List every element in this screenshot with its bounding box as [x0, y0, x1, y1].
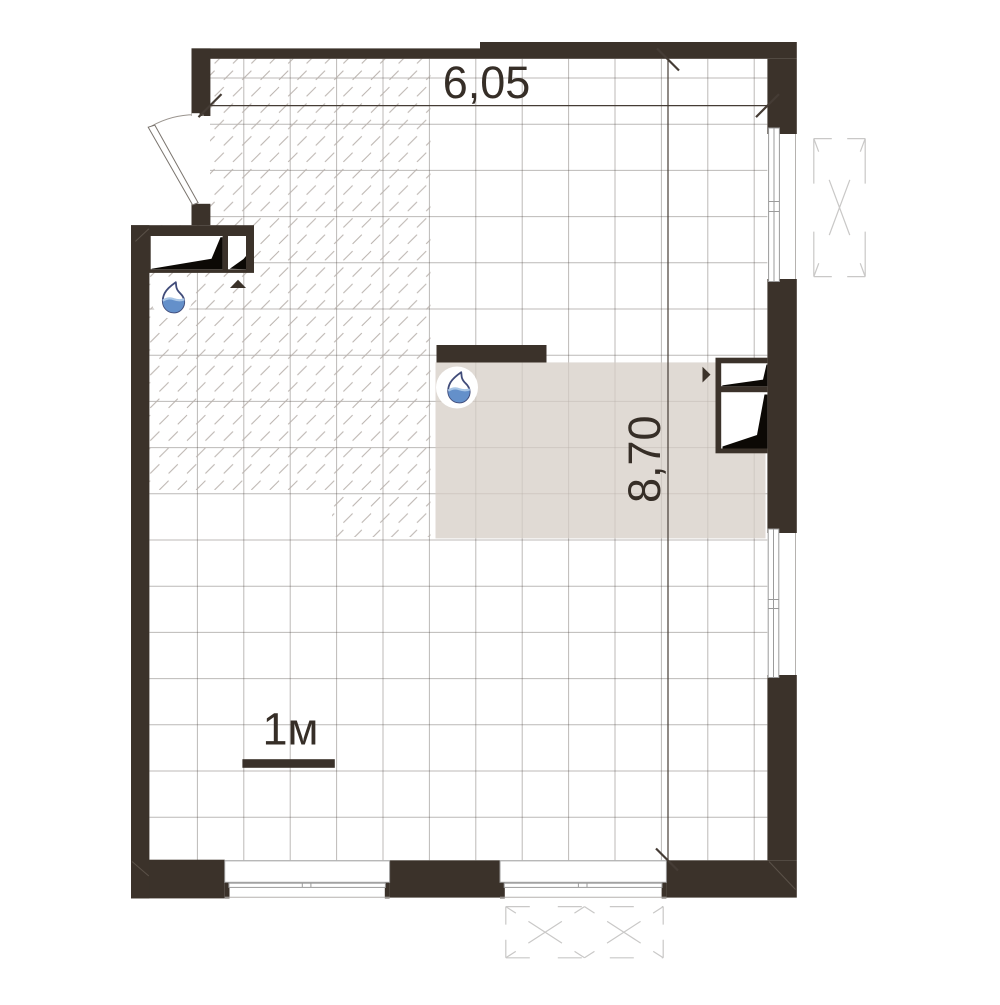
svg-text:6,05: 6,05: [443, 57, 531, 108]
svg-text:8,70: 8,70: [619, 415, 670, 503]
svg-text:1м: 1м: [263, 704, 319, 755]
